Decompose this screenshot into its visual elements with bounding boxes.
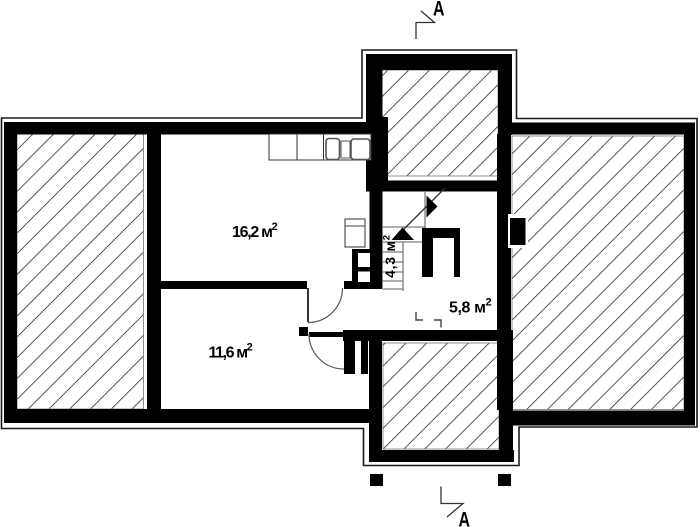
svg-text:4,3 м2: 4,3 м2 — [382, 234, 399, 278]
svg-text:11,6 м2: 11,6 м2 — [209, 342, 253, 362]
svg-text:16,2 м2: 16,2 м2 — [232, 221, 278, 241]
svg-text:А: А — [459, 509, 471, 527]
svg-text:5,8 м2: 5,8 м2 — [449, 297, 492, 317]
svg-text:А: А — [433, 0, 445, 20]
